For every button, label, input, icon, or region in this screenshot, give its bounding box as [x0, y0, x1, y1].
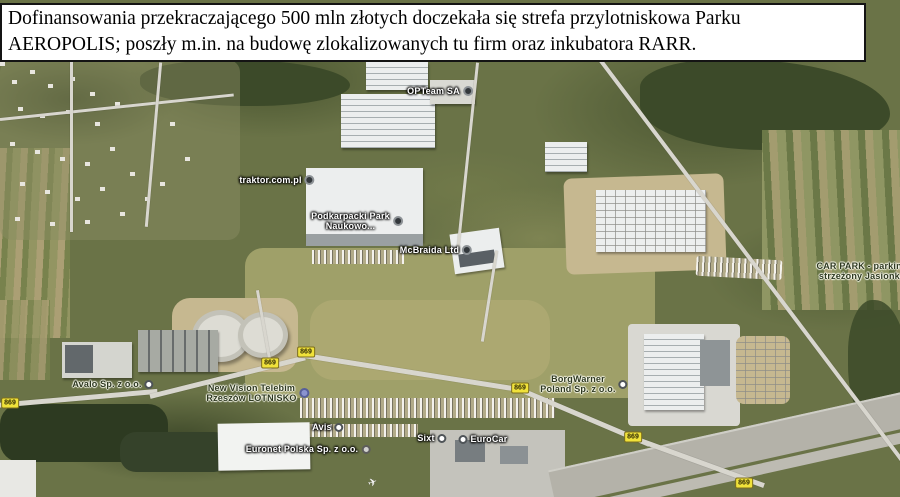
map-label-text: McBraida Ltd	[400, 245, 459, 255]
satellite-map[interactable]: ✈ OPTeam SAtraktor.com.plPodkarpacki Par…	[0, 0, 900, 497]
map-label-avalo[interactable]: Avalo Sp. z o.o.	[72, 379, 153, 389]
map-label-text: Avis	[312, 422, 331, 432]
sixt-marker-icon[interactable]	[438, 434, 447, 443]
map-label-eurocar[interactable]: EuroCar	[459, 434, 508, 444]
caption-banner: Dofinansowania przekraczającego 500 mln …	[0, 3, 866, 62]
road-badge-869: 869	[1, 398, 19, 409]
map-label-text: Sixt	[417, 433, 434, 443]
opteam-marker-icon[interactable]	[463, 86, 473, 96]
map-label-avis[interactable]: Avis	[312, 422, 343, 432]
road-badge-869: 869	[735, 478, 753, 489]
eurocar-marker-icon[interactable]	[459, 435, 468, 444]
euronet-marker-icon[interactable]	[361, 445, 370, 454]
map-label-mcbraida[interactable]: McBraida Ltd	[400, 245, 472, 255]
caption-line-1: Dofinansowania przekraczającego 500 mln …	[8, 6, 858, 32]
screenshot-root: ✈ OPTeam SAtraktor.com.plPodkarpacki Par…	[0, 0, 900, 497]
map-label-traktor[interactable]: traktor.com.pl	[239, 175, 314, 185]
map-label-text: BorgWarnerPoland Sp. z o.o.	[540, 374, 615, 394]
map-label-text: Podkarpacki ParkNaukowo...	[311, 211, 390, 231]
map-label-newvision[interactable]: New Vision TelebimRzeszów LOTNISKO	[206, 383, 309, 403]
podkarpacki-marker-icon[interactable]	[393, 216, 403, 226]
road-badge-869: 869	[624, 432, 642, 443]
map-label-text: Euronet Polska Sp. z o.o.	[246, 444, 359, 454]
map-label-opteam[interactable]: OPTeam SA	[407, 86, 473, 96]
map-label-text: OPTeam SA	[407, 86, 460, 96]
map-label-euronet[interactable]: Euronet Polska Sp. z o.o.	[246, 444, 371, 454]
map-label-text: CAR PARK - parkingstrzeżony Jasionka	[817, 261, 900, 281]
map-label-podkarpacki[interactable]: Podkarpacki ParkNaukowo...	[311, 211, 403, 231]
road-badge-869: 869	[511, 383, 529, 394]
map-label-carpark[interactable]: CAR PARK - parkingstrzeżony Jasionka	[817, 261, 900, 281]
road-badge-869: 869	[297, 347, 315, 358]
map-label-sixt[interactable]: Sixt	[417, 433, 446, 443]
newvision-marker-icon[interactable]	[300, 388, 310, 398]
avalo-marker-icon[interactable]	[145, 380, 154, 389]
map-label-text: New Vision TelebimRzeszów LOTNISKO	[206, 383, 296, 403]
map-label-text: Avalo Sp. z o.o.	[72, 379, 141, 389]
traktor-marker-icon[interactable]	[305, 175, 315, 185]
borgwarner-marker-icon[interactable]	[619, 380, 628, 389]
map-label-text: traktor.com.pl	[239, 175, 301, 185]
avis-marker-icon[interactable]	[335, 423, 344, 432]
road-badge-869: 869	[261, 358, 279, 369]
map-label-text: EuroCar	[471, 434, 508, 444]
mcbraida-marker-icon[interactable]	[462, 245, 472, 255]
map-label-borgwarner[interactable]: BorgWarnerPoland Sp. z o.o.	[540, 374, 627, 394]
caption-line-2: AEROPOLIS; poszły m.in. na budowę zlokal…	[8, 32, 858, 58]
